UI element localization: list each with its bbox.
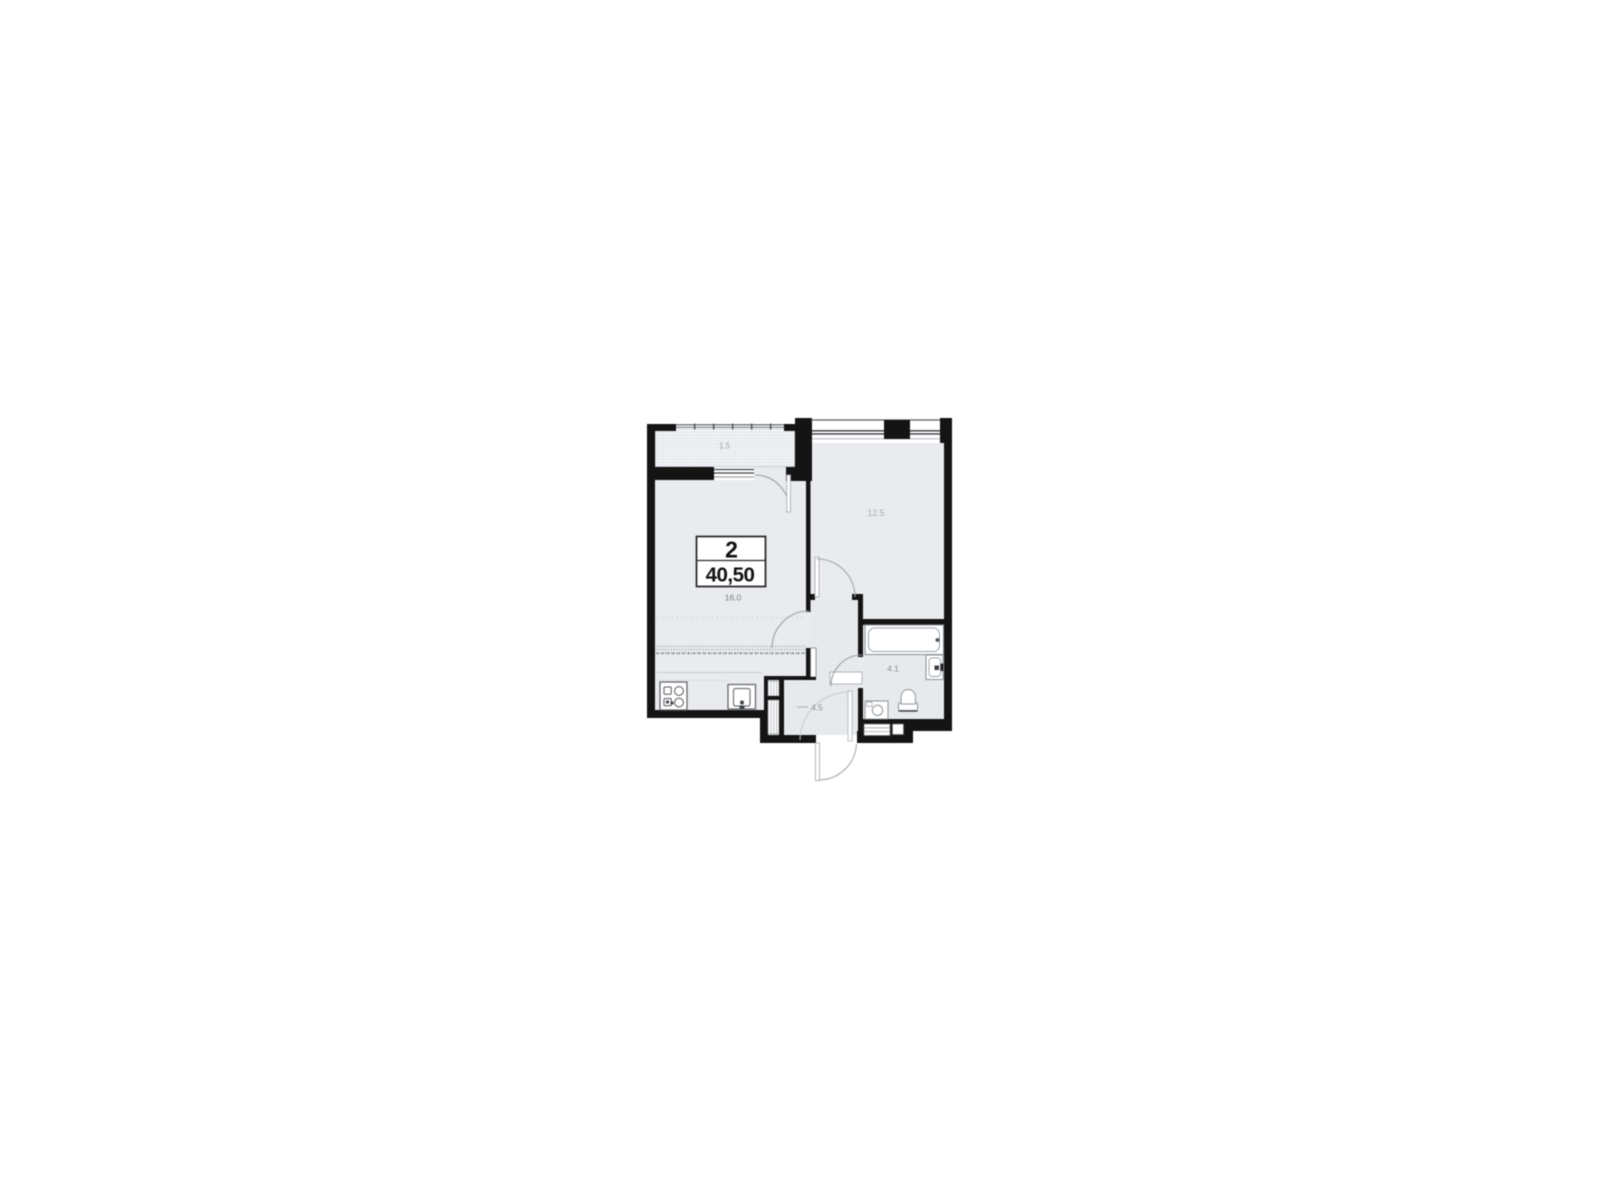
svg-text:12.5: 12.5 xyxy=(867,508,884,518)
svg-text:1.5: 1.5 xyxy=(719,442,731,451)
svg-text:40,50: 40,50 xyxy=(706,564,755,587)
svg-text:16.0: 16.0 xyxy=(725,593,742,603)
svg-text:2: 2 xyxy=(725,537,738,563)
svg-text:4.1: 4.1 xyxy=(887,664,899,674)
svg-text:4.5: 4.5 xyxy=(811,703,823,713)
